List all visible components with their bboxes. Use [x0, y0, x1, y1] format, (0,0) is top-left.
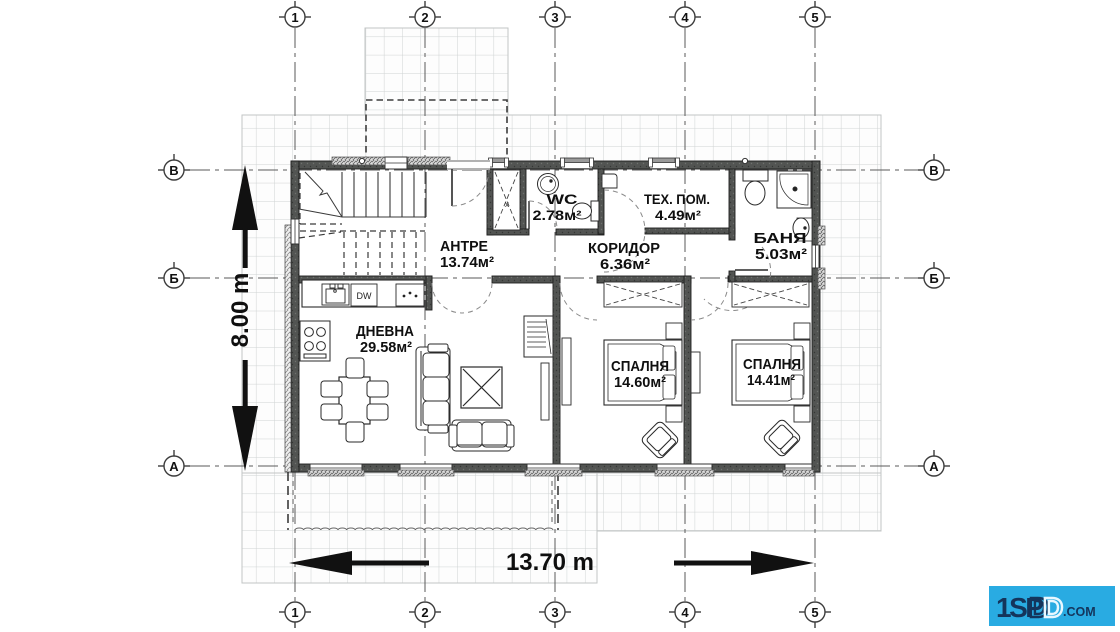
svg-text:3: 3 — [551, 10, 558, 25]
svg-text:DW: DW — [357, 291, 372, 301]
svg-text:2: 2 — [421, 605, 428, 620]
svg-text:1: 1 — [291, 605, 298, 620]
svg-text:6.36м²: 6.36м² — [600, 256, 650, 273]
svg-text:Б: Б — [929, 271, 938, 286]
svg-text:5.03м²: 5.03м² — [755, 246, 807, 263]
svg-text:СПАЛНЯ: СПАЛНЯ — [611, 358, 669, 375]
svg-text:5: 5 — [811, 10, 818, 25]
svg-text:14.41м²: 14.41м² — [747, 372, 795, 389]
svg-text:А: А — [929, 459, 939, 474]
svg-text:2.78м²: 2.78м² — [533, 207, 582, 223]
svg-text:ДНЕВНА: ДНЕВНА — [356, 323, 414, 340]
svg-text:5: 5 — [811, 605, 818, 620]
svg-text:В: В — [929, 163, 938, 178]
svg-text:13.70 m: 13.70 m — [506, 549, 594, 576]
svg-text:1: 1 — [291, 10, 298, 25]
svg-text:4: 4 — [681, 605, 689, 620]
svg-text:В: В — [169, 163, 178, 178]
svg-text:4: 4 — [681, 10, 689, 25]
svg-text:ТЕХ. ПОМ.: ТЕХ. ПОМ. — [644, 191, 710, 207]
svg-text:Б: Б — [169, 271, 178, 286]
svg-text:14.60м²: 14.60м² — [614, 374, 666, 391]
svg-text:А: А — [169, 459, 179, 474]
svg-text:13.74м²: 13.74м² — [440, 254, 494, 271]
svg-text:29.58м²: 29.58м² — [360, 339, 412, 356]
svg-text:СПАЛНЯ: СПАЛНЯ — [743, 356, 801, 373]
svg-text:3: 3 — [551, 605, 558, 620]
svg-text:КОРИДОР: КОРИДОР — [588, 240, 660, 257]
svg-text:8.00 m: 8.00 m — [227, 273, 254, 348]
svg-text:WC: WC — [547, 191, 578, 207]
svg-text:2: 2 — [421, 10, 428, 25]
svg-text:АНТРЕ: АНТРЕ — [440, 238, 488, 255]
svg-text:x: x — [505, 200, 509, 209]
svg-text:.COM: .COM — [1063, 605, 1096, 619]
svg-text:D: D — [1043, 592, 1063, 623]
svg-text:БАНЯ: БАНЯ — [754, 230, 807, 247]
svg-text:4.49м²: 4.49м² — [655, 207, 701, 223]
